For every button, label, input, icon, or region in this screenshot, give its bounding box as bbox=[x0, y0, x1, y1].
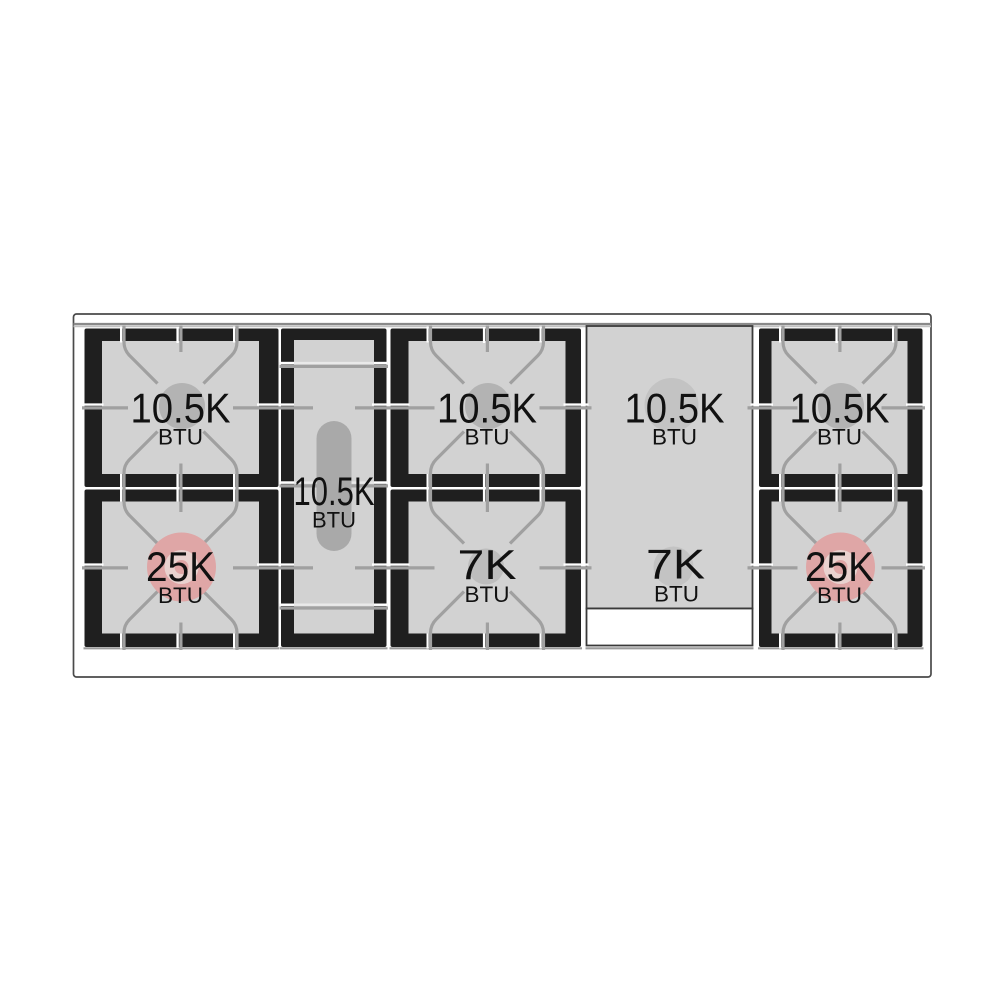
svg-text:BTU: BTU bbox=[465, 425, 510, 450]
svg-text:BTU: BTU bbox=[817, 425, 862, 450]
svg-text:BTU: BTU bbox=[312, 508, 356, 533]
svg-text:7K: 7K bbox=[646, 541, 705, 588]
svg-text:BTU: BTU bbox=[817, 583, 862, 608]
svg-text:BTU: BTU bbox=[465, 582, 510, 607]
svg-text:BTU: BTU bbox=[652, 425, 697, 450]
svg-text:BTU: BTU bbox=[158, 425, 203, 450]
svg-text:BTU: BTU bbox=[654, 582, 699, 607]
svg-text:7K: 7K bbox=[458, 541, 517, 588]
svg-text:BTU: BTU bbox=[158, 583, 203, 608]
